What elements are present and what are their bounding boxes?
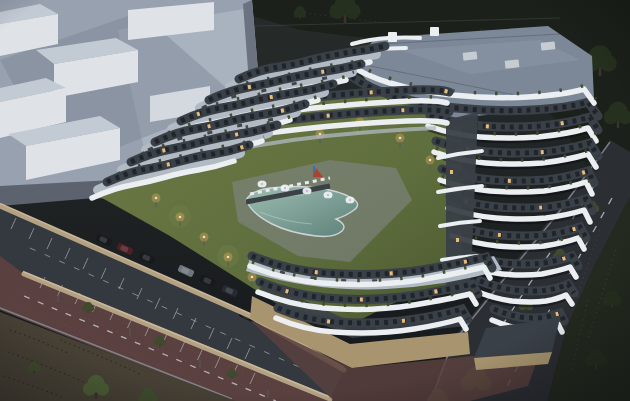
render-viewport — [0, 0, 630, 401]
vignette-overlay — [0, 0, 630, 401]
apartment-complex-render — [0, 0, 630, 401]
